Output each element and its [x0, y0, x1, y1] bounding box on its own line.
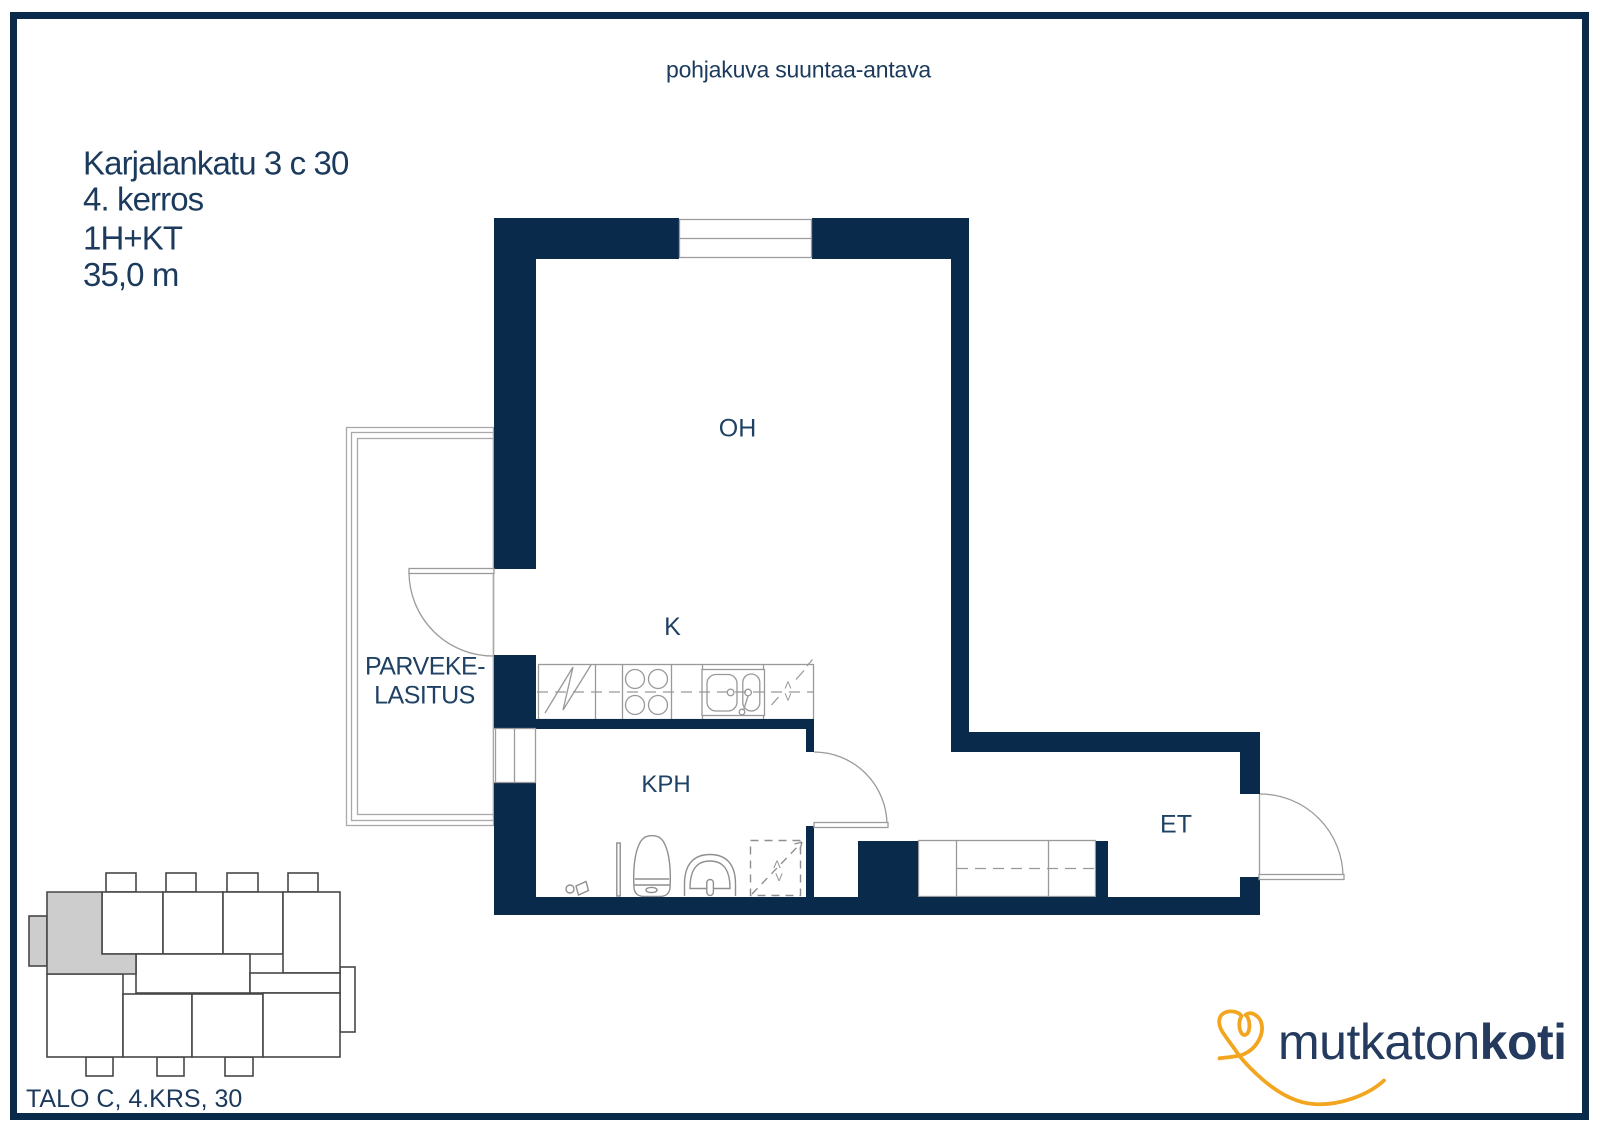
svg-text:KPH: KPH: [641, 771, 690, 798]
svg-text:OH: OH: [719, 415, 757, 443]
svg-text:LASITUS: LASITUS: [374, 682, 475, 710]
svg-text:V: V: [775, 872, 783, 884]
svg-text:Karjalankatu 3 c 30: Karjalankatu 3 c 30: [83, 145, 349, 182]
svg-text:Λ: Λ: [785, 681, 792, 692]
svg-text:V: V: [785, 693, 792, 704]
svg-text:1H+KT: 1H+KT: [83, 219, 183, 256]
svg-text:K: K: [664, 613, 681, 641]
svg-text:35,0 m: 35,0 m: [83, 256, 179, 293]
svg-text:ET: ET: [1160, 811, 1192, 839]
svg-text:PARVEKE-: PARVEKE-: [365, 653, 485, 681]
svg-text:4. kerros: 4. kerros: [83, 181, 204, 218]
svg-text:TALO C, 4.KRS, 30: TALO C, 4.KRS, 30: [26, 1085, 242, 1113]
svg-text:pohjakuva suuntaa-antava: pohjakuva suuntaa-antava: [666, 57, 931, 83]
svg-text:Λ: Λ: [773, 859, 781, 871]
svg-text:mutkatonkoti: mutkatonkoti: [1278, 1014, 1567, 1070]
